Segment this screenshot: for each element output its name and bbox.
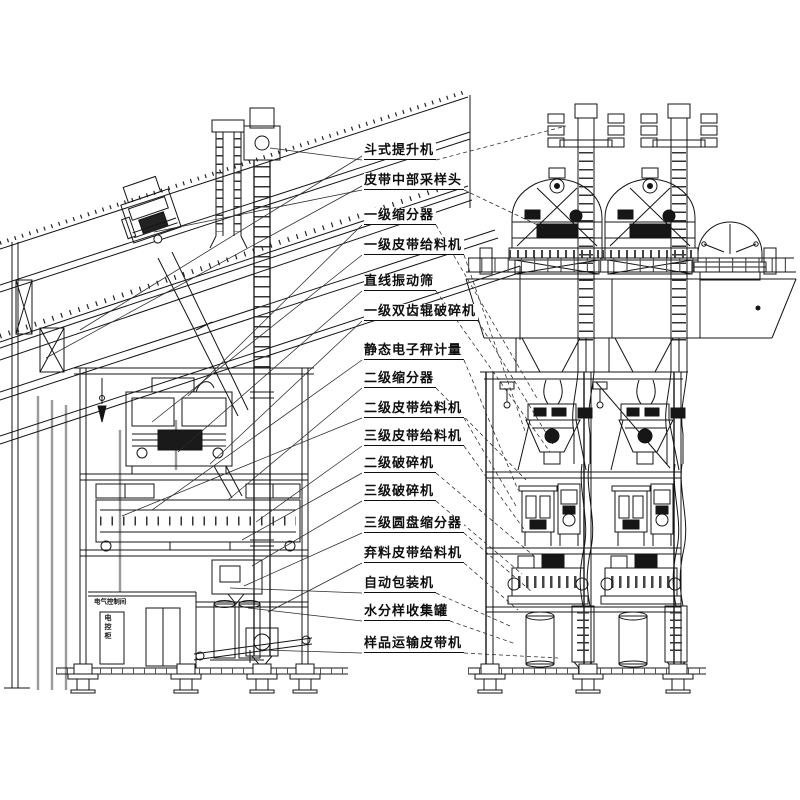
ground-left bbox=[56, 664, 348, 693]
part-label-electronic-scale: 静态电子秤计量 bbox=[364, 343, 464, 360]
part-label-belt-sampler: 皮带中部采样头 bbox=[364, 173, 464, 190]
part-label-vibrating-screen: 直线振动筛 bbox=[364, 274, 436, 291]
part-label-sample-conveyor: 样品运输皮带机 bbox=[364, 636, 464, 653]
part-label-belt-feeder-3: 三级皮带给料机 bbox=[364, 429, 464, 446]
part-label-belt-feeder-1: 一级皮带给料机 bbox=[364, 238, 464, 255]
belt-sampler-side bbox=[112, 174, 184, 252]
belt-trough-section bbox=[694, 222, 766, 280]
tower-bay-1 bbox=[500, 380, 594, 672]
ground-equipment-side bbox=[194, 560, 312, 663]
control-room-label-vertical: 电控柜 bbox=[103, 614, 113, 641]
part-label-disc-divider-3: 三级圆盘缩分器 bbox=[364, 516, 464, 533]
right-view bbox=[466, 104, 796, 693]
part-label-auto-packer: 自动包装机 bbox=[364, 576, 436, 593]
part-label-crusher-2: 二级破碎机 bbox=[364, 456, 436, 473]
part-label-belt-feeder-2: 二级皮带给料机 bbox=[364, 401, 464, 418]
part-label-roller-crusher-1: 一级双齿辊破碎机 bbox=[364, 304, 478, 321]
ladder-mast bbox=[210, 120, 247, 248]
part-label-moisture-tank: 水分样收集罐 bbox=[364, 604, 450, 621]
tower-bay-2 bbox=[593, 380, 687, 672]
part-label-reject-belt-feeder: 弃料皮带给料机 bbox=[364, 546, 464, 563]
part-label-divider-2: 二级缩分器 bbox=[364, 371, 436, 388]
elevation-drawing bbox=[0, 0, 800, 800]
part-label-bucket-elevator: 斗式提升机 bbox=[364, 143, 436, 160]
drawing-canvas: 斗式提升机 皮带中部采样头 一级缩分器 一级皮带给料机 直线振动筛 一级双齿辊破… bbox=[0, 0, 800, 800]
hoist-symbol bbox=[98, 378, 106, 422]
part-label-divider-1: 一级缩分器 bbox=[364, 208, 436, 225]
part-label-crusher-3: 三级破碎机 bbox=[364, 484, 436, 501]
leader-lines bbox=[46, 126, 566, 658]
ground-right bbox=[468, 664, 706, 693]
control-room-label: 电气控制间 bbox=[94, 597, 126, 606]
transition-chutes bbox=[516, 338, 679, 372]
